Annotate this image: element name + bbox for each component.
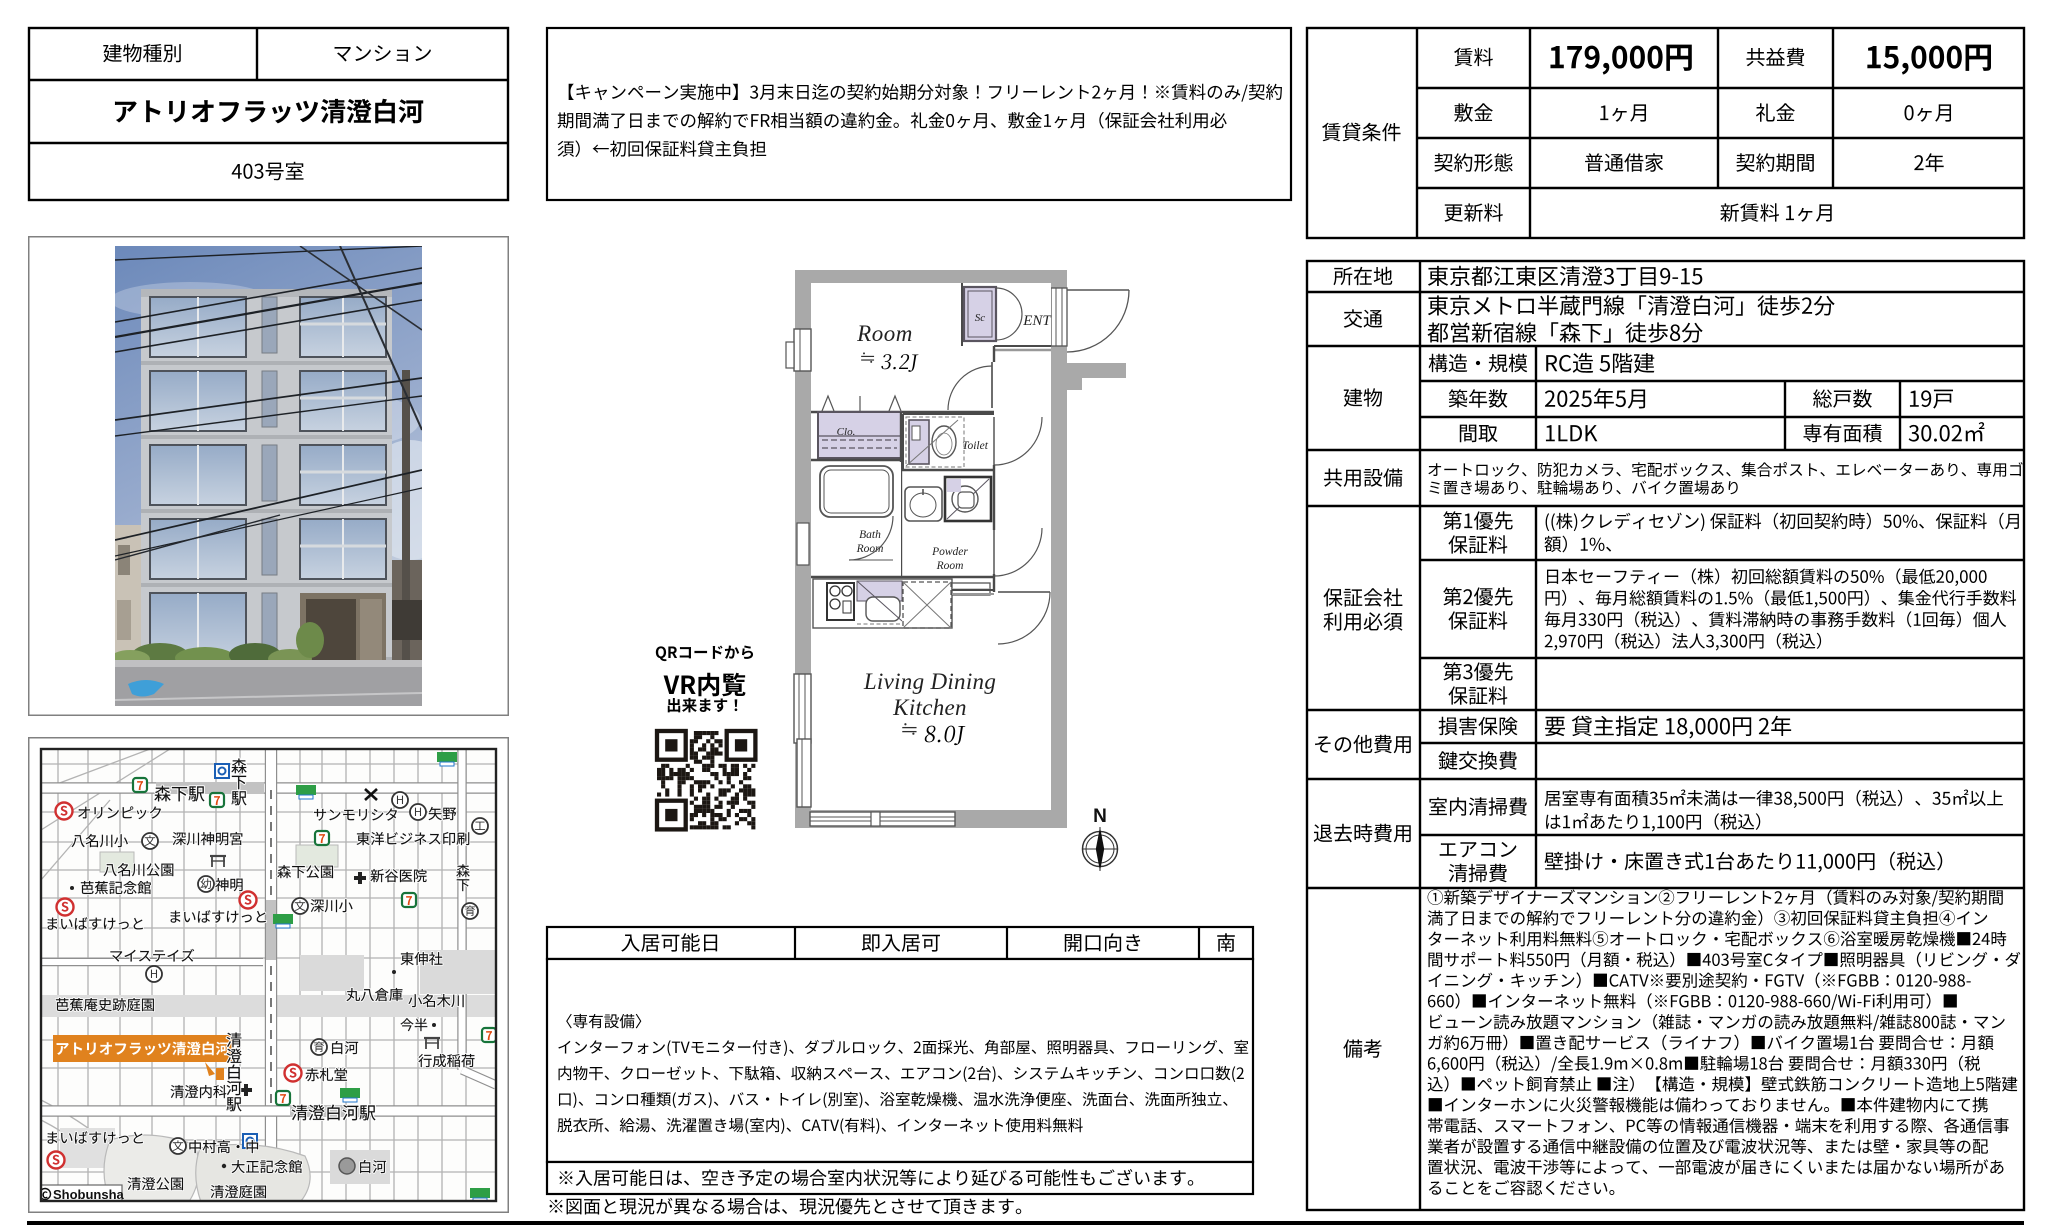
svg-text:Living Dining: Living Dining: [863, 669, 996, 694]
svg-text:Toilet: Toilet: [962, 440, 989, 452]
svg-text:Sc: Sc: [975, 312, 986, 324]
svg-text:Room: Room: [936, 560, 964, 572]
svg-text:N: N: [1093, 806, 1107, 827]
svg-text:Room: Room: [856, 543, 884, 555]
svg-text:Kitchen: Kitchen: [892, 695, 967, 720]
svg-text:Room: Room: [856, 321, 913, 346]
svg-text:Shobunsha: Shobunsha: [53, 1187, 125, 1202]
svg-text:Powder: Powder: [931, 546, 968, 558]
svg-text:ENT: ENT: [1022, 313, 1052, 329]
svg-text:Clo.: Clo.: [837, 426, 856, 438]
svg-text:Bath: Bath: [859, 529, 881, 541]
